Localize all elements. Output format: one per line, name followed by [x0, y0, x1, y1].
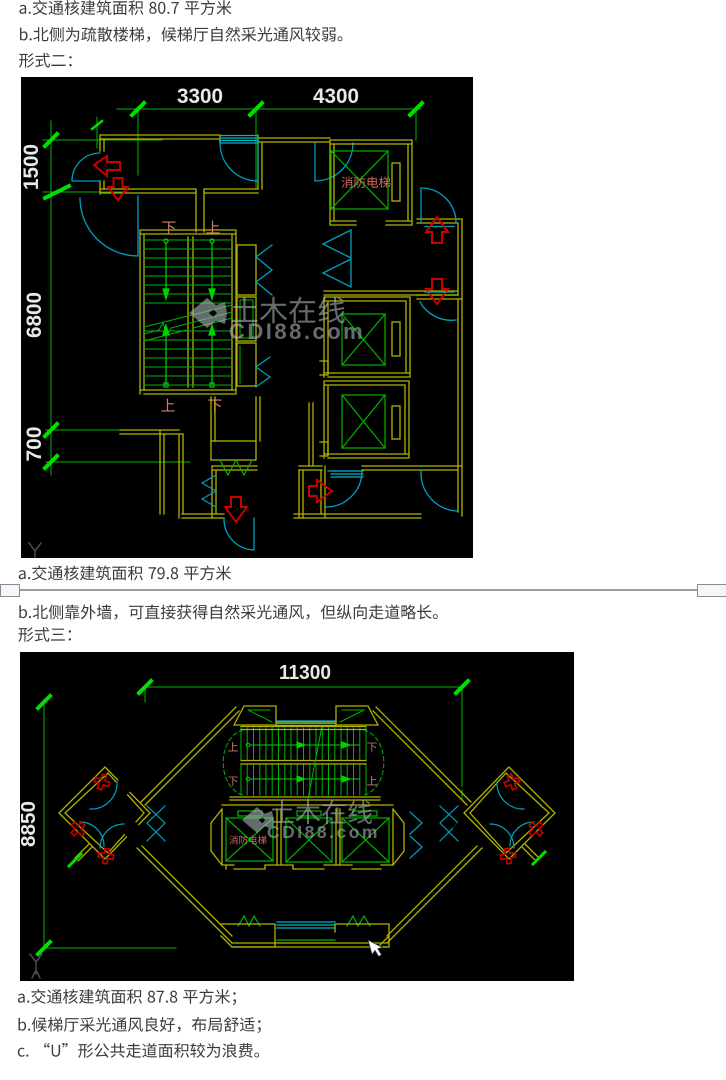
svg-text:3300: 3300: [177, 85, 223, 108]
svg-text:8850: 8850: [20, 801, 40, 847]
svg-text:CDI88.com: CDI88.com: [267, 822, 380, 842]
svg-text:4300: 4300: [313, 85, 359, 108]
svg-text:6800: 6800: [23, 292, 46, 338]
svg-text:700: 700: [23, 427, 46, 462]
svg-text:11300: 11300: [279, 662, 331, 684]
svg-text:CDI88.com: CDI88.com: [229, 319, 365, 344]
svg-text:1500: 1500: [21, 144, 43, 190]
